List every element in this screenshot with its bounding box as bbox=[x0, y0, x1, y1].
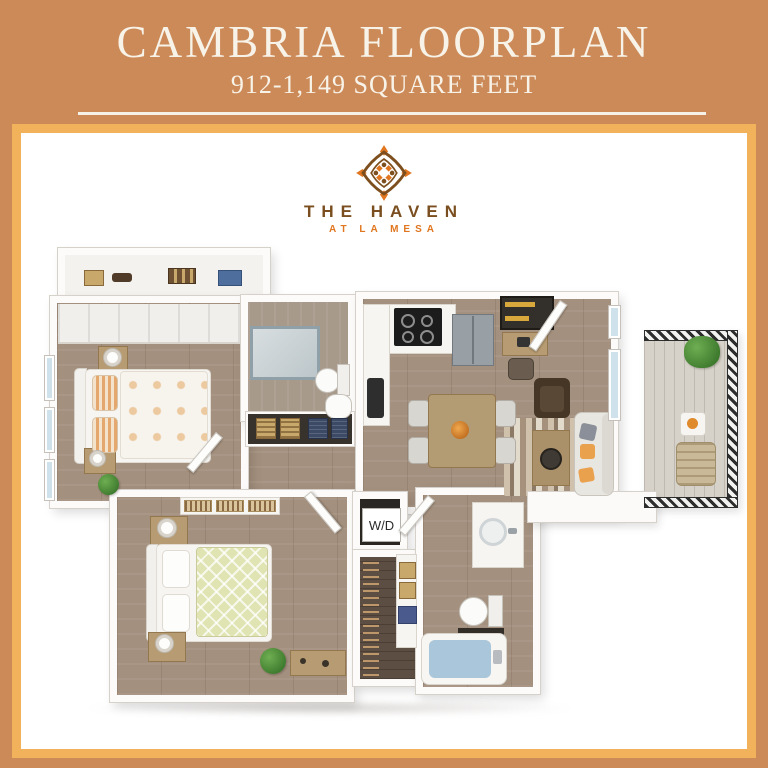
wardrobe-closet bbox=[58, 304, 240, 344]
balcony-railing bbox=[727, 330, 738, 508]
pillow-striped bbox=[92, 375, 118, 411]
navy-basket bbox=[331, 418, 348, 439]
suitcase-blue bbox=[218, 270, 242, 286]
balcony-sliding-door bbox=[609, 350, 620, 420]
window bbox=[45, 408, 54, 452]
dining-chair bbox=[494, 437, 516, 464]
table-lamp bbox=[104, 349, 121, 366]
balcony-chair bbox=[676, 442, 716, 486]
wicker-basket bbox=[280, 418, 300, 439]
dining-chair bbox=[408, 400, 430, 427]
pillow-orange bbox=[578, 467, 595, 483]
window bbox=[45, 356, 54, 400]
washer-dryer-label: W/D bbox=[362, 508, 401, 542]
books-row bbox=[505, 302, 535, 307]
desk bbox=[290, 650, 346, 676]
shelf-box bbox=[399, 582, 416, 599]
balcony-plant bbox=[684, 336, 720, 368]
page-title: CAMBRIA FLOORPLAN bbox=[0, 16, 768, 68]
dining-chair bbox=[408, 437, 430, 464]
refrigerator-door-divider bbox=[472, 316, 474, 364]
pillow-striped bbox=[92, 417, 118, 453]
rack-slats bbox=[248, 500, 276, 512]
faucet bbox=[508, 528, 517, 534]
rack-slats bbox=[184, 500, 212, 512]
toilet bbox=[459, 597, 488, 626]
pillow-orange bbox=[580, 444, 595, 459]
navy-basket bbox=[308, 418, 328, 439]
logo-name: THE HAVEN bbox=[0, 202, 768, 222]
logo-location: AT LA MESA bbox=[0, 224, 768, 235]
header-separator bbox=[78, 112, 706, 115]
page-subtitle: 912-1,149 SQUARE FEET bbox=[0, 70, 768, 100]
storage-box bbox=[84, 270, 104, 286]
balcony-bowl bbox=[687, 418, 698, 429]
stove-burners-icon bbox=[394, 308, 442, 346]
table-centerpiece bbox=[451, 421, 469, 439]
window bbox=[45, 460, 54, 500]
toilet-tank bbox=[488, 595, 503, 627]
desk-item bbox=[300, 658, 306, 664]
wicker-basket bbox=[256, 418, 276, 439]
suitcase-brown bbox=[168, 268, 196, 284]
pillow-white bbox=[162, 550, 190, 588]
table-lamp bbox=[90, 451, 105, 466]
hanging-clothes bbox=[363, 558, 379, 676]
potted-plant bbox=[260, 648, 286, 674]
kitchen-sink bbox=[367, 378, 384, 418]
vanity-sink bbox=[479, 518, 507, 546]
shower bbox=[250, 326, 320, 380]
plan-shadow bbox=[80, 700, 580, 716]
desk-chair bbox=[508, 358, 534, 380]
shelf-box bbox=[399, 562, 416, 579]
pillow-white bbox=[162, 594, 190, 632]
books-row bbox=[505, 316, 529, 321]
storage-bag bbox=[112, 273, 132, 282]
exterior-wall bbox=[528, 492, 656, 522]
accent-chair-cushion bbox=[540, 386, 564, 412]
coffee-table-tray bbox=[540, 448, 562, 470]
table-lamp bbox=[158, 519, 176, 537]
bathtub-water bbox=[429, 640, 491, 678]
pillow-gray bbox=[579, 423, 598, 442]
toilet-tank bbox=[337, 364, 350, 396]
table-lamp bbox=[156, 635, 173, 652]
shelf-box-blue bbox=[398, 606, 417, 624]
pedestal-sink bbox=[325, 394, 352, 419]
trellis-duvet bbox=[196, 547, 268, 637]
haven-ornament-icon bbox=[355, 144, 413, 202]
tub-faucet bbox=[493, 650, 502, 664]
rack-slats bbox=[216, 500, 244, 512]
desk-item bbox=[322, 660, 329, 667]
sofa-back bbox=[602, 414, 613, 494]
floral-duvet bbox=[120, 371, 208, 459]
potted-plant bbox=[98, 474, 119, 495]
dining-chair bbox=[494, 400, 516, 427]
balcony-railing bbox=[644, 497, 738, 508]
window bbox=[609, 306, 620, 338]
